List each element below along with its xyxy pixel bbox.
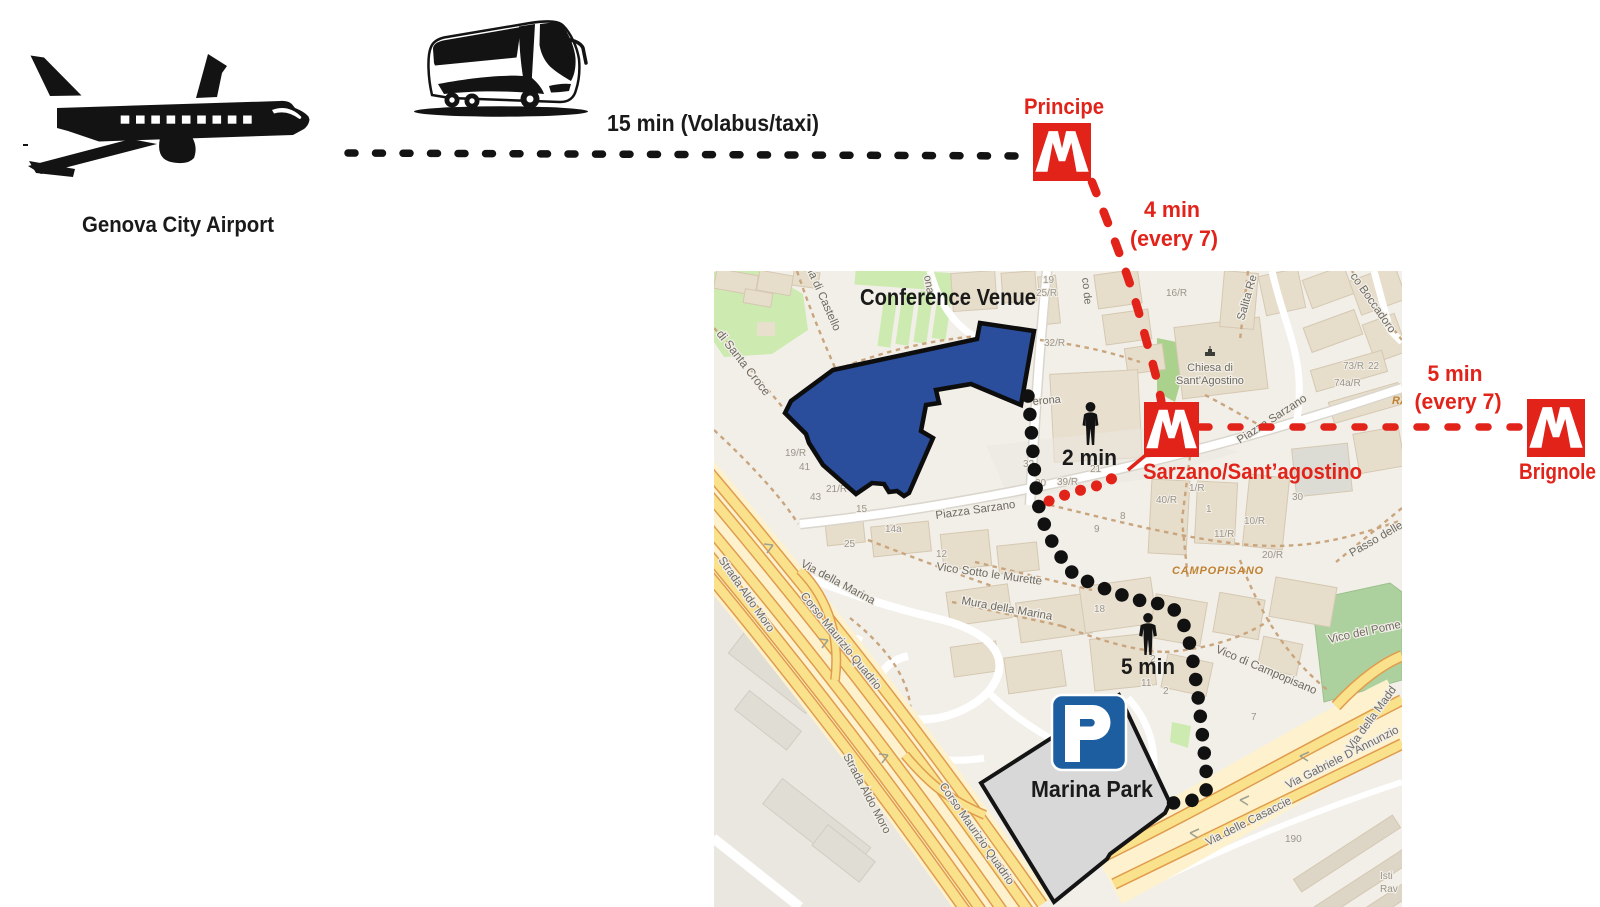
svg-text:11: 11 — [1141, 678, 1152, 689]
svg-text:10/R: 10/R — [1244, 516, 1265, 527]
svg-text:7: 7 — [1251, 712, 1257, 723]
svg-text:190: 190 — [1285, 834, 1302, 845]
svg-text:Chiesa di: Chiesa di — [1187, 362, 1233, 374]
svg-text:5 min: 5 min — [1121, 654, 1175, 679]
svg-text:Sant’Agostino: Sant’Agostino — [1176, 375, 1244, 387]
svg-text:18: 18 — [1094, 604, 1106, 615]
svg-text:8: 8 — [1120, 511, 1126, 522]
svg-text:16/R: 16/R — [1166, 288, 1187, 299]
svg-text:2 min: 2 min — [1062, 445, 1117, 470]
svg-text:25: 25 — [844, 539, 856, 550]
svg-text:Rav: Rav — [1380, 884, 1398, 895]
svg-text:20/R: 20/R — [1262, 550, 1283, 561]
svg-text:CAMPOPISANO: CAMPOPISANO — [1172, 565, 1264, 577]
svg-text:Marina Park: Marina Park — [1031, 776, 1153, 802]
svg-text:1/R: 1/R — [1189, 483, 1205, 494]
svg-text:43: 43 — [810, 492, 822, 503]
svg-text:Conference Venue: Conference Venue — [860, 284, 1036, 310]
svg-text:14a: 14a — [885, 524, 902, 535]
svg-text:Genova City Airport: Genova City Airport — [82, 212, 275, 237]
svg-text:15: 15 — [856, 504, 868, 515]
svg-text:40/R: 40/R — [1156, 495, 1177, 506]
svg-text:25/R: 25/R — [1036, 288, 1057, 299]
svg-text:Brignole: Brignole — [1519, 459, 1596, 484]
svg-text:73/R: 73/R — [1343, 361, 1364, 372]
svg-text:Sarzano/Sant’agostino: Sarzano/Sant’agostino — [1143, 459, 1362, 484]
svg-text:(every 7): (every 7) — [1415, 389, 1502, 414]
svg-text:9: 9 — [1094, 524, 1100, 535]
svg-text:15 min (Volabus/taxi): 15 min (Volabus/taxi) — [607, 110, 819, 136]
svg-text:11/R: 11/R — [1214, 529, 1234, 540]
svg-text:39/R: 39/R — [1057, 477, 1078, 488]
svg-text:19: 19 — [1043, 275, 1055, 286]
svg-text:Isti: Isti — [1380, 871, 1393, 882]
svg-text:1: 1 — [1206, 504, 1212, 515]
svg-text:41: 41 — [799, 462, 811, 473]
svg-text:erona: erona — [1032, 394, 1062, 408]
svg-text:4 min: 4 min — [1144, 197, 1200, 222]
svg-text:12: 12 — [936, 549, 948, 560]
svg-text:2: 2 — [1163, 686, 1169, 697]
svg-text:Principe: Principe — [1024, 94, 1104, 119]
svg-text:22: 22 — [1368, 361, 1380, 372]
svg-text:30: 30 — [1292, 492, 1304, 503]
svg-text:RA: RA — [1392, 395, 1408, 407]
svg-text:5 min: 5 min — [1428, 361, 1483, 386]
svg-text:74a/R: 74a/R — [1334, 378, 1361, 389]
svg-text:(every 7): (every 7) — [1130, 226, 1218, 251]
svg-text:32/R: 32/R — [1044, 338, 1065, 349]
svg-text:19/R: 19/R — [785, 448, 806, 459]
